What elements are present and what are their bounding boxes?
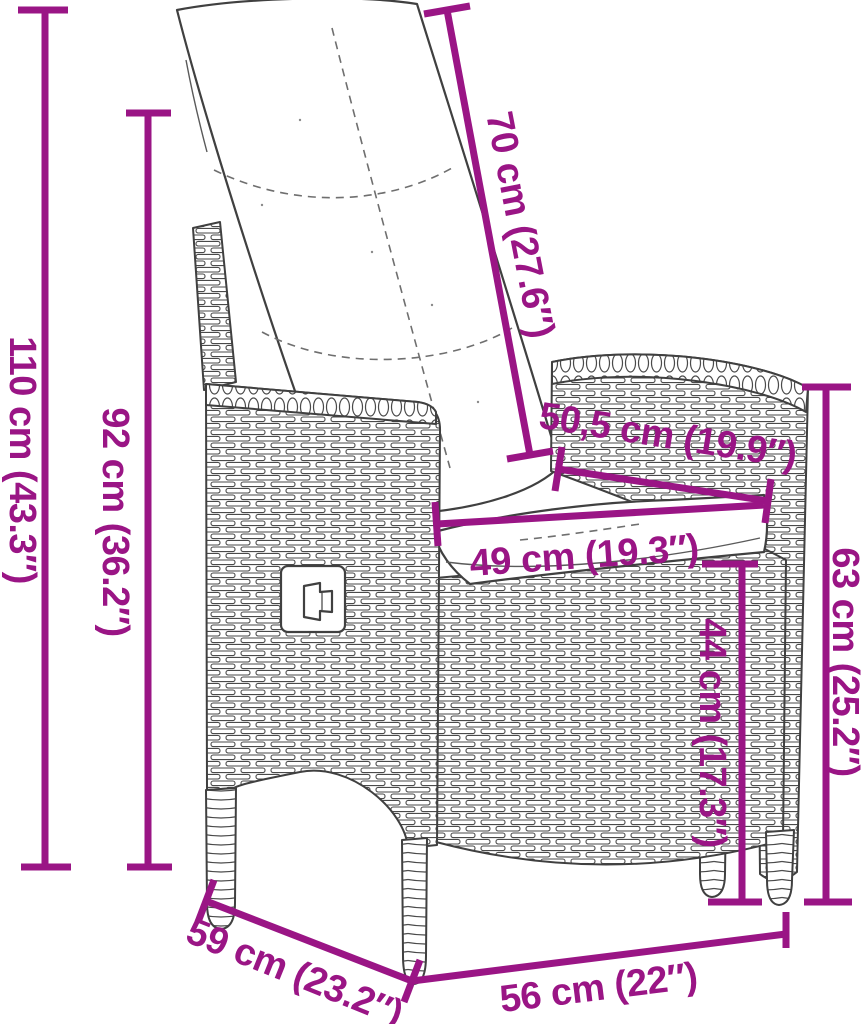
dim-armrest-height: 63 cm (25.2″)	[802, 387, 864, 902]
dim-depth: 59 cm (23.2″)	[180, 880, 420, 1024]
dimension-tick	[424, 6, 470, 14]
dim-width: 56 cm (22″)	[412, 912, 786, 1021]
dimension-diagram: 110 cm (43.3″) 92 cm (36.2″) 70 cm (27.6…	[0, 0, 864, 1024]
dim-back-height: 92 cm (36.2″)	[94, 113, 172, 867]
dim-label-seat-height: 44 cm (17.3″)	[691, 618, 733, 847]
dim-label-armrest-height: 63 cm (25.2″)	[824, 547, 864, 776]
dim-label-overall-height: 110 cm (43.3″)	[1, 336, 43, 584]
backrest-pole	[193, 222, 236, 390]
left-side-panel	[206, 384, 440, 848]
dim-label-back-height: 92 cm (36.2″)	[94, 407, 136, 636]
chair-leg-front-left	[402, 838, 427, 984]
recline-knob	[281, 566, 345, 632]
dim-overall-height: 110 cm (43.3″)	[1, 10, 71, 867]
dimension-tick	[435, 502, 438, 546]
chair-leg-front-right	[766, 830, 794, 905]
chair-illustration: 110 cm (43.3″) 92 cm (36.2″) 70 cm (27.6…	[0, 0, 864, 1024]
